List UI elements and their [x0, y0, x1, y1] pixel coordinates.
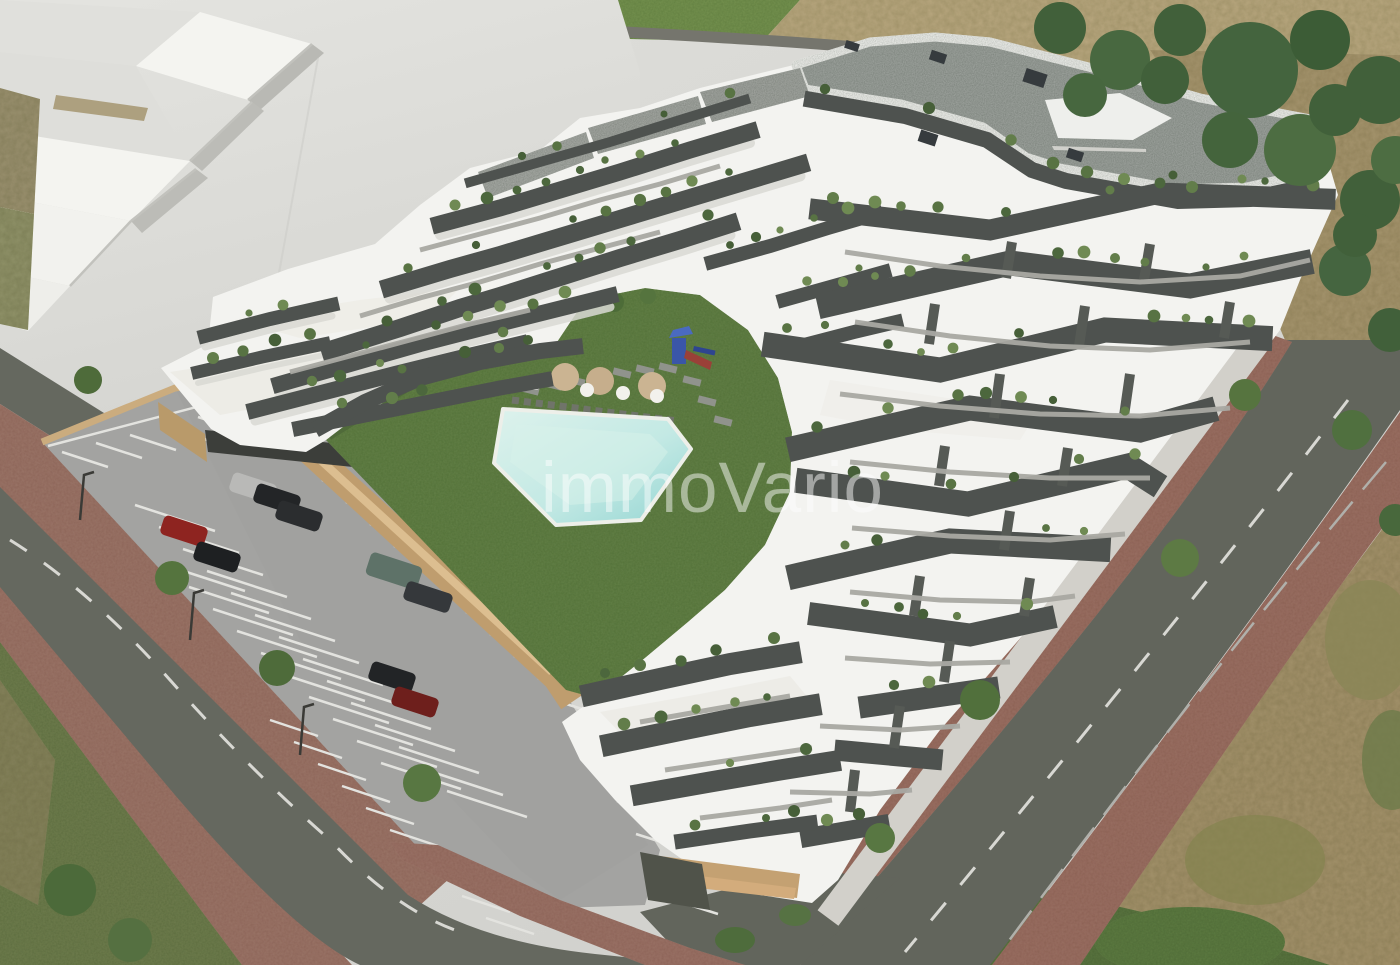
svg-text:immoVario: immoVario: [541, 449, 884, 528]
